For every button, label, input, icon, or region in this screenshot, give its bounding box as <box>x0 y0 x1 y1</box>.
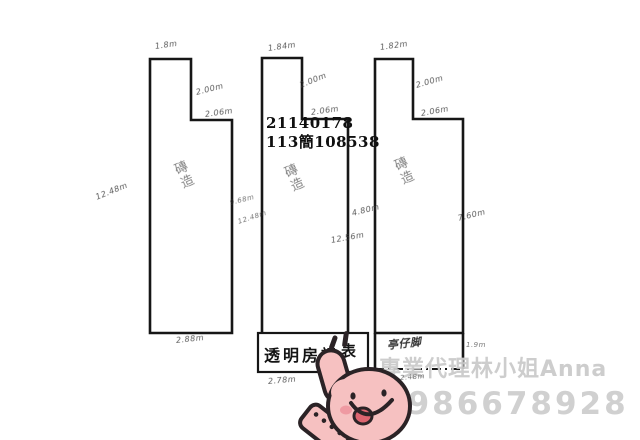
sticker-eye-right <box>381 389 386 396</box>
sticker-fist <box>328 369 410 440</box>
survey-sketch-document: 專業代理林小姐Anna 0986678928 1.8m 2.00m 2.06m … <box>0 0 640 440</box>
thumbs-up-sticker <box>0 0 640 440</box>
sticker-joint-patch <box>331 379 361 405</box>
sticker-eye-left <box>350 392 355 399</box>
exclamation-mark-icon <box>342 331 349 348</box>
exclamation-mark-icon <box>328 335 338 351</box>
sticker-blush <box>340 406 352 415</box>
